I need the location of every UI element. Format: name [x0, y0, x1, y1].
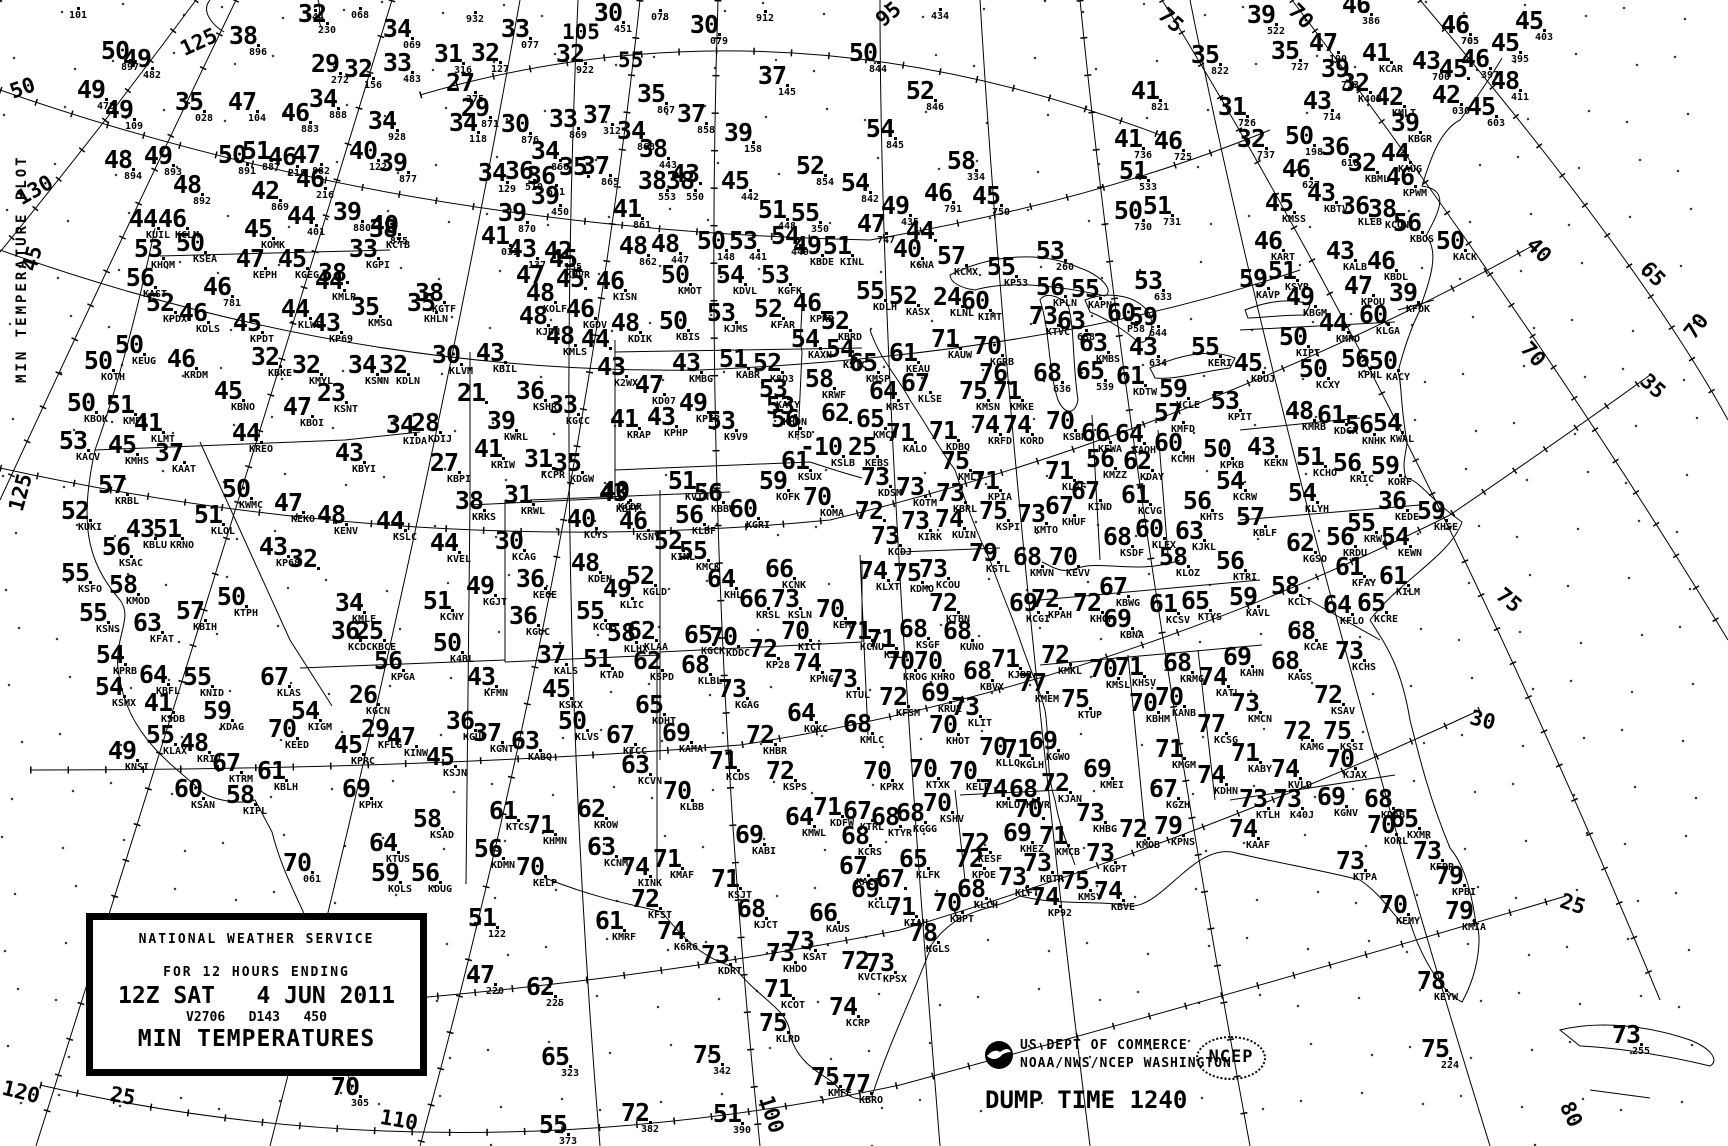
station-id: KGPT — [1103, 865, 1127, 875]
station-id: 603 — [1487, 119, 1505, 129]
station-id: 127 — [491, 65, 509, 75]
station-id: 342 — [713, 1067, 731, 1077]
station-id: 434 — [931, 12, 949, 22]
station-temp: 70 — [283, 850, 311, 875]
station-id: KRBL — [115, 497, 139, 507]
station-id: KTYS — [1198, 613, 1222, 623]
station-temp: 58 — [226, 782, 254, 807]
station-temp: 67 — [1099, 574, 1127, 599]
station-temp: 56 — [1333, 450, 1361, 475]
station-temp: 50 — [67, 390, 95, 415]
station-id: KDIJ — [428, 435, 452, 445]
station-temp: 77 — [1018, 670, 1046, 695]
station-temp: 44 — [281, 296, 309, 321]
station-id: KLSE — [918, 395, 942, 405]
station-id: KBGR — [1408, 135, 1432, 145]
station-id: KDRT — [718, 967, 742, 977]
station-id: KLBB — [680, 803, 704, 813]
legend-period-text: FOR 12 HOURS ENDING — [93, 965, 420, 980]
station-temp: 37 — [473, 720, 501, 745]
station-temp: 58 — [805, 366, 833, 391]
station-temp: 70 — [929, 712, 957, 737]
station-temp: 50 — [1203, 436, 1231, 461]
station-temp: 41 — [1131, 78, 1159, 103]
station-temp: 68 — [1033, 360, 1061, 385]
station-id: KAMG — [1300, 743, 1324, 753]
station-id: 129 — [498, 185, 516, 195]
station-temp: 71 — [1231, 740, 1259, 765]
station-temp: 46 — [1254, 228, 1282, 253]
station-temp: 31 — [434, 41, 462, 66]
station-temp: 72 — [841, 948, 869, 973]
station-temp: 71 — [1003, 736, 1031, 761]
station-id: KOKC — [804, 725, 828, 735]
station-temp: 46 — [1441, 12, 1469, 37]
station-id: KBRO — [859, 1096, 883, 1106]
station-id: KGAG — [735, 701, 759, 711]
station-temp: 46 — [281, 100, 309, 125]
station-dot — [699, 182, 702, 185]
station-id: KILM — [1396, 588, 1420, 598]
station-id: KHTS — [1200, 513, 1224, 523]
station-temp: 47 — [236, 246, 264, 271]
min-temperature-map: MIN TEMPERATURE PLOT 5089749482494784910… — [0, 0, 1728, 1146]
station-temp: 60 — [174, 776, 202, 801]
station-id: KPKB — [1220, 461, 1244, 471]
station-id: 077 — [521, 41, 539, 51]
station-id: KDLS — [196, 325, 220, 335]
station-id: KSLC — [393, 533, 417, 543]
station-temp: 69 — [1317, 784, 1345, 809]
station-id: KMCN — [1248, 715, 1272, 725]
station-temp: 44 — [129, 206, 157, 231]
station-temp: 45 — [1515, 8, 1543, 33]
station-temp: 34 — [478, 160, 506, 185]
station-temp: 41 — [1362, 40, 1390, 65]
station-temp: 34 — [309, 86, 337, 111]
station-temp: 35 — [1191, 42, 1219, 67]
station-temp: 70 — [803, 484, 831, 509]
station-temp: 47 — [274, 490, 302, 515]
station-temp: 71 — [813, 794, 841, 819]
station-temp: 46 — [1282, 156, 1310, 181]
station-temp: 34 — [449, 110, 477, 135]
station-temp: 69 — [1029, 728, 1057, 753]
station-id: KBPT — [950, 915, 974, 925]
station-temp: 54 — [826, 336, 854, 361]
station-temp: 73 — [861, 464, 889, 489]
station-id: 068 — [351, 11, 369, 21]
station-id: KLOL — [211, 527, 235, 537]
station-temp: 57 — [1154, 400, 1182, 425]
station-temp: 71 — [929, 418, 957, 443]
station-temp: 61 — [1317, 402, 1345, 427]
station-temp: 50 — [1114, 198, 1142, 223]
station-id: KSPD — [650, 673, 674, 683]
station-id: KMAF — [670, 871, 694, 881]
station-temp: 35 — [1271, 38, 1299, 63]
station-temp: 41 — [481, 223, 509, 248]
station-temp: 72 — [879, 684, 907, 709]
station-temp: 55 — [61, 560, 89, 585]
station-temp: 32 — [251, 344, 279, 369]
station-temp: 67 — [1149, 776, 1177, 801]
station-temp: 39 — [487, 408, 515, 433]
station-id: KUKI — [78, 523, 102, 533]
station-id: KBLH — [274, 783, 298, 793]
station-temp: 61 — [889, 340, 917, 365]
station-id: KIGM — [308, 723, 332, 733]
station-temp: 61 — [1121, 482, 1149, 507]
station-id: KCRS — [858, 848, 882, 858]
station-temp: 55 — [539, 1112, 567, 1137]
station-temp: 51 — [423, 588, 451, 613]
station-temp: 55 — [856, 278, 884, 303]
station-id: 932 — [466, 15, 484, 25]
station-id: KSJN — [443, 769, 467, 779]
station-temp: 53 — [1134, 268, 1162, 293]
station-temp: 30 — [690, 12, 718, 37]
station-temp: 52 — [61, 498, 89, 523]
station-temp: 48 — [317, 502, 345, 527]
station-id: KCLT — [1288, 598, 1312, 608]
station-temp: 51 — [668, 468, 696, 493]
station-id: KCDJ — [888, 548, 912, 558]
station-temp: 56 — [374, 648, 402, 673]
station-temp: 73 — [829, 666, 857, 691]
station-temp: 71 — [993, 378, 1021, 403]
station-temp: 70 — [1326, 746, 1354, 771]
station-id: KIMT — [978, 313, 1002, 323]
station-temp: 40 — [893, 236, 921, 261]
station-id: KPNS — [1171, 838, 1195, 848]
station-temp: 64 — [1115, 421, 1143, 446]
station-temp: 72 — [1119, 816, 1147, 841]
station-id: 030 — [1452, 107, 1470, 117]
station-temp: 79 — [1154, 813, 1182, 838]
station-id: KORL — [1384, 837, 1408, 847]
station-temp: 64 — [1323, 592, 1351, 617]
station-temp: 74 — [1094, 878, 1122, 903]
station-temp: 54 — [866, 116, 894, 141]
station-temp: 54 — [291, 698, 319, 723]
station-temp: 58 — [1271, 573, 1299, 598]
station-id: KCRE — [1374, 615, 1398, 625]
station-id: KLVS — [575, 733, 599, 743]
station-id: KRNO — [170, 541, 194, 551]
station-temp: 79 — [969, 540, 997, 565]
station-id: KRKS — [472, 513, 496, 523]
station-temp: 61 — [1149, 591, 1177, 616]
station-id: KLFK — [916, 871, 940, 881]
station-temp: 32 — [1237, 126, 1265, 151]
station-temp: 50 — [1369, 348, 1397, 373]
station-temp: 71 — [1155, 736, 1183, 761]
station-temp: 45 — [972, 183, 1000, 208]
graticule-label-25: 25 — [108, 1084, 137, 1109]
station-temp: 56 — [474, 836, 502, 861]
station-id: KSAN — [191, 801, 215, 811]
station-id: 122 — [488, 930, 506, 940]
station-temp: 34 — [335, 590, 363, 615]
station-id: KTPA — [1353, 873, 1377, 883]
station-temp: 51 — [823, 233, 851, 258]
station-temp: 45 — [1265, 190, 1293, 215]
station-temp: 33 — [549, 106, 577, 131]
station-id: 382 — [641, 1125, 659, 1135]
station-temp: 67 — [212, 750, 240, 775]
station-id: KACT — [856, 878, 880, 888]
station-id: KDBQ — [946, 443, 970, 453]
station-id: KWAL — [1390, 435, 1414, 445]
station-id: KERI — [1208, 359, 1232, 369]
station-temp: 64 — [787, 700, 815, 725]
station-id: KAAF — [1246, 841, 1270, 851]
station-temp: 47 — [635, 372, 663, 397]
station-temp: 39 — [1389, 280, 1417, 305]
station-temp: 46 — [1367, 248, 1395, 273]
station-id: KAMA — [679, 745, 703, 755]
station-temp: 51 — [468, 905, 496, 930]
station-id: 145 — [778, 88, 796, 98]
station-temp: 69 — [662, 720, 690, 745]
station-id: KMGM — [1172, 761, 1196, 771]
station-id: KHSE — [1434, 523, 1458, 533]
station-id: 411 — [1511, 93, 1529, 103]
station-id: KPHX — [359, 801, 383, 811]
station-id: KPRC — [351, 757, 375, 767]
legend-agency-title: NATIONAL WEATHER SERVICE — [93, 932, 420, 947]
station-temp: 35 — [553, 450, 581, 475]
station-temp: 30 — [432, 342, 460, 367]
station-id: KGLD — [643, 588, 667, 598]
station-temp: 59 — [1239, 266, 1267, 291]
station-id: KMTO — [1034, 526, 1058, 536]
ncep-logo-icon: NCEP — [1196, 1036, 1266, 1080]
station-id: KDLN — [396, 377, 420, 387]
station-temp: 49 — [77, 77, 105, 102]
station-id: 725 — [1174, 153, 1192, 163]
station-id: KRWL — [521, 507, 545, 517]
station-id: KVTN — [685, 493, 709, 503]
station-temp: 61 — [1379, 563, 1407, 588]
station-temp: 74 — [1197, 762, 1225, 787]
legend-version-codes: V2706 D143 450 — [93, 1010, 420, 1025]
station-id: KDMN — [491, 861, 515, 871]
station-temp: 46 — [619, 508, 647, 533]
station-id: KSNS — [96, 625, 120, 635]
station-temp: 51 — [719, 346, 747, 371]
station-temp: 73 — [771, 586, 799, 611]
station-temp: 55 — [146, 722, 174, 747]
station-dot — [1467, 77, 1470, 80]
station-temp: 40 — [567, 506, 595, 531]
station-temp: 51 — [106, 392, 134, 417]
station-temp: 70 — [331, 1074, 359, 1099]
station-id: KWMC — [239, 501, 263, 511]
station-temp: 37 — [537, 642, 565, 667]
station-temp: 70 — [909, 756, 937, 781]
station-temp: 52 — [146, 290, 174, 315]
station-temp: 64 — [707, 566, 735, 591]
station-temp: 49 — [679, 390, 707, 415]
station-temp: 52 — [796, 153, 824, 178]
station-id: 079 — [710, 37, 728, 47]
station-id: 158 — [744, 145, 762, 155]
station-id: 118 — [469, 135, 487, 145]
station-id: KMPO — [1336, 335, 1360, 345]
station-temp: 46 — [167, 346, 195, 371]
station-temp: 28 — [411, 410, 439, 435]
station-temp: 50 — [115, 332, 143, 357]
station-temp: 57 — [1236, 504, 1264, 529]
station-id: KBPI — [447, 475, 471, 485]
station-temp: 70 — [816, 596, 844, 621]
station-id: KDGW — [570, 475, 594, 485]
station-temp: 70 — [709, 624, 737, 649]
station-temp: 36 — [516, 566, 544, 591]
station-temp: 73 — [1231, 690, 1259, 715]
station-id: 255 — [1632, 1047, 1650, 1057]
station-temp: 31 — [524, 446, 552, 471]
station-id: KIDA — [403, 437, 427, 447]
station-id: KTUL — [846, 691, 870, 701]
station-temp: 65 — [541, 1044, 569, 1069]
station-temp: 62 — [627, 618, 655, 643]
station-temp: 74 — [1003, 412, 1031, 437]
station-temp: 55 — [987, 254, 1015, 279]
station-temp: 63 — [621, 752, 649, 777]
station-id: 634 — [1149, 359, 1167, 369]
station-temp: 47 — [228, 89, 256, 114]
station-temp: 45 — [1491, 30, 1519, 55]
station-temp: 48 — [619, 233, 647, 258]
station-temp: 36 — [516, 378, 544, 403]
station-temp: 55 — [576, 598, 604, 623]
station-temp: 47 — [857, 211, 885, 236]
station-temp: 45 — [233, 310, 261, 335]
station-temp: 37 — [155, 440, 183, 465]
station-temp: 53 — [729, 228, 757, 253]
station-temp: 39 — [1247, 2, 1275, 27]
station-temp: 59 — [371, 860, 399, 885]
station-id: 730 — [1134, 223, 1152, 233]
station-id: KBIS — [676, 333, 700, 343]
station-id: KCAR — [1379, 65, 1403, 75]
station-id: 627 — [1302, 181, 1320, 191]
station-temp: 75 — [1323, 718, 1351, 743]
station-id: KCYS — [584, 531, 608, 541]
station-id: KDTW — [1133, 388, 1157, 398]
station-temp: 73 — [901, 508, 929, 533]
station-temp: 50 — [1279, 324, 1307, 349]
station-temp: 45 — [426, 744, 454, 769]
station-temp: 71 — [991, 646, 1019, 671]
station-temp: 60 — [1135, 516, 1163, 541]
station-temp: 70 — [1155, 684, 1183, 709]
station-id: KCAE — [1304, 643, 1328, 653]
station-temp: 72 — [855, 498, 883, 523]
station-temp: 79 — [1445, 898, 1473, 923]
station-temp: 59 — [1129, 304, 1157, 329]
station-temp: 36 — [446, 708, 474, 733]
station-dot — [584, 287, 587, 290]
station-id: KHOT — [946, 737, 970, 747]
station-temp: 34 — [386, 412, 414, 437]
station-temp: 45 — [542, 676, 570, 701]
station-temp: 24 — [933, 284, 961, 309]
station-id: 944 — [306, 13, 324, 23]
station-temp: 73 — [1413, 838, 1441, 863]
station-id: KEUG — [132, 357, 156, 367]
dump-time-text: DUMP TIME 1240 — [985, 1086, 1187, 1114]
station-temp: 45 — [1467, 94, 1495, 119]
station-temp: 71 — [653, 846, 681, 871]
station-temp: 51 — [758, 197, 786, 222]
station-id: KGWO — [1046, 753, 1070, 763]
station-temp: 48 — [180, 730, 208, 755]
station-temp: 37 — [677, 101, 705, 126]
station-id: KMCB — [1056, 848, 1080, 858]
station-id: KLRD — [776, 1035, 800, 1045]
station-id: KBGM — [1303, 309, 1327, 319]
station-temp: 68 — [843, 711, 871, 736]
station-temp: 69 — [1103, 606, 1131, 631]
station-temp: 30 — [495, 528, 523, 553]
station-temp: 71 — [711, 866, 739, 891]
station-dot — [904, 887, 907, 890]
station-temp: 45 — [244, 216, 272, 241]
station-temp: 64 — [139, 662, 167, 687]
station-temp: 43 — [335, 440, 363, 465]
station-temp: 32 — [289, 546, 317, 571]
station-id: KHUF — [1062, 518, 1086, 528]
station-temp: 72 — [1073, 590, 1101, 615]
station-temp: 37 — [583, 102, 611, 127]
station-id: KBIH — [193, 623, 217, 633]
station-temp: 44 — [232, 420, 260, 445]
station-id: KLOZ — [1176, 569, 1200, 579]
station-id: 892 — [193, 197, 211, 207]
station-temp: 32 — [471, 40, 499, 65]
station-temp: 59 — [1371, 453, 1399, 478]
station-temp: 39 — [531, 183, 559, 208]
station-id: 869 — [569, 131, 587, 141]
station-temp: 63 — [587, 834, 615, 859]
legend-product-title: MIN TEMPERATURES — [93, 1026, 420, 1052]
station-temp: 43 — [476, 340, 504, 365]
station-id: KLVM — [449, 367, 473, 377]
station-temp: 23 — [317, 380, 345, 405]
station-temp: 57 — [98, 472, 126, 497]
station-temp: 65 — [684, 622, 712, 647]
station-temp: 63 — [511, 728, 539, 753]
station-id: KSMX — [112, 699, 136, 709]
station-id: KGLS — [926, 945, 950, 955]
station-id: KBOI — [300, 419, 324, 429]
station-temp: 43 — [1326, 238, 1354, 263]
station-id: KCVN — [638, 777, 662, 787]
station-temp: 44 — [287, 203, 315, 228]
station-temp: 73 — [998, 864, 1026, 889]
station-temp: 33 — [501, 16, 529, 41]
station-id: 550 — [686, 193, 704, 203]
station-temp: 45 — [108, 432, 136, 457]
station-id: KSTC — [843, 361, 867, 371]
station-temp: 53 — [707, 300, 735, 325]
station-id: KSTL — [986, 565, 1010, 575]
station-id: KEED — [285, 741, 309, 751]
